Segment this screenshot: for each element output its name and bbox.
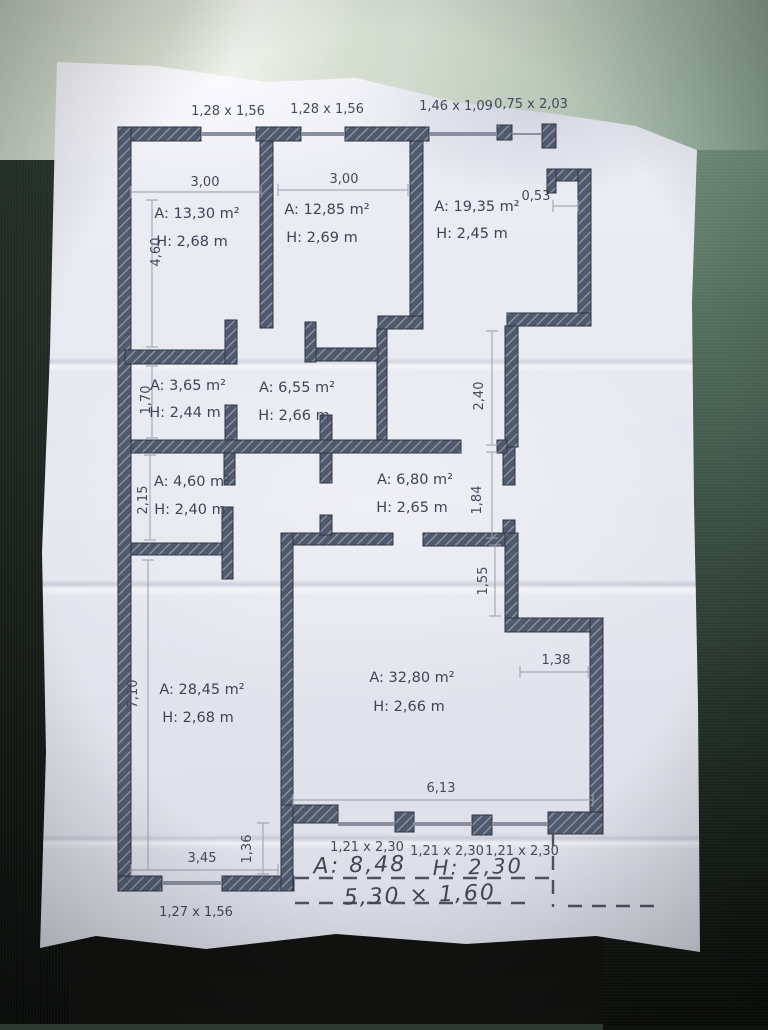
room1-ceiling-label: H: 2,68 m: [156, 234, 227, 250]
room3-ceiling-label: H: 2,45 m: [436, 226, 507, 242]
top-opening-label-3: 1,46 x 1,09: [419, 99, 493, 114]
handwritten-balcony-ceiling: H: 2,30: [432, 854, 523, 880]
dim-room6-depth: 2,15: [136, 486, 151, 515]
room4-area-label: A: 3,65 m²: [150, 378, 226, 394]
room9-area-label: A: 32,80 m²: [369, 670, 454, 686]
dim-room8-width: 3,45: [188, 851, 217, 866]
room3-area-label: A: 19,35 m²: [434, 199, 519, 215]
handwritten-notes: A: 8,48 H: 2,30 5,30 × 1,60: [311, 852, 523, 911]
room6-area-label: A: 4,60 m²: [154, 474, 230, 490]
dim-room9-width: 6,13: [427, 781, 456, 796]
printed-labels: 1,28 x 1,56 1,28 x 1,56 1,46 x 1,09 0,75…: [126, 97, 570, 920]
room2-ceiling-label: H: 2,69 m: [286, 230, 357, 246]
dim-room1-depth: 4,60: [149, 238, 164, 267]
dim-room2-width: 3,00: [330, 172, 359, 187]
dim-room4-depth: 1,70: [139, 386, 154, 415]
handwritten-balcony-area: A: 8,48: [311, 852, 406, 879]
dim-niche-width: 0,53: [522, 189, 551, 204]
top-opening-label-2: 1,28 x 1,56: [290, 102, 364, 117]
room5-area-label: A: 6,55 m²: [259, 380, 335, 396]
dim-right-upper: 2,40: [472, 382, 487, 411]
dim-room1-width: 3,00: [191, 175, 220, 190]
dim-notch-width: 1,38: [542, 653, 571, 668]
dim-recess-depth: 1,36: [240, 835, 255, 864]
room6-ceiling-label: H: 2,40 m: [154, 502, 225, 518]
room8-ceiling-label: H: 2,68 m: [162, 710, 233, 726]
dimension-lines: [131, 184, 593, 876]
room7-area-label: A: 6,80 m²: [377, 472, 453, 488]
room4-ceiling-label: H: 2,44 m: [149, 405, 220, 421]
room8-area-label: A: 28,45 m²: [159, 682, 244, 698]
floor-plan-drawing: 1,28 x 1,56 1,28 x 1,56 1,46 x 1,09 0,75…: [0, 0, 768, 1024]
dim-right-middle: 1,84: [470, 486, 485, 515]
bottom-opening-label-4: 1,27 x 1,56: [159, 905, 233, 920]
dim-room8-depth: 7,10: [126, 680, 141, 709]
room2-area-label: A: 12,85 m²: [284, 202, 369, 218]
room9-ceiling-label: H: 2,66 m: [373, 699, 444, 715]
room7-ceiling-label: H: 2,65 m: [376, 500, 447, 516]
top-opening-label-4: 0,75 x 2,03: [494, 97, 568, 112]
room1-area-label: A: 13,30 m²: [154, 206, 239, 222]
room5-ceiling-label: H: 2,66 m: [258, 408, 329, 424]
top-opening-label-1: 1,28 x 1,56: [191, 104, 265, 119]
dim-right-lower: 1,55: [476, 567, 491, 596]
handwritten-balcony-size: 5,30 × 1,60: [343, 880, 496, 910]
